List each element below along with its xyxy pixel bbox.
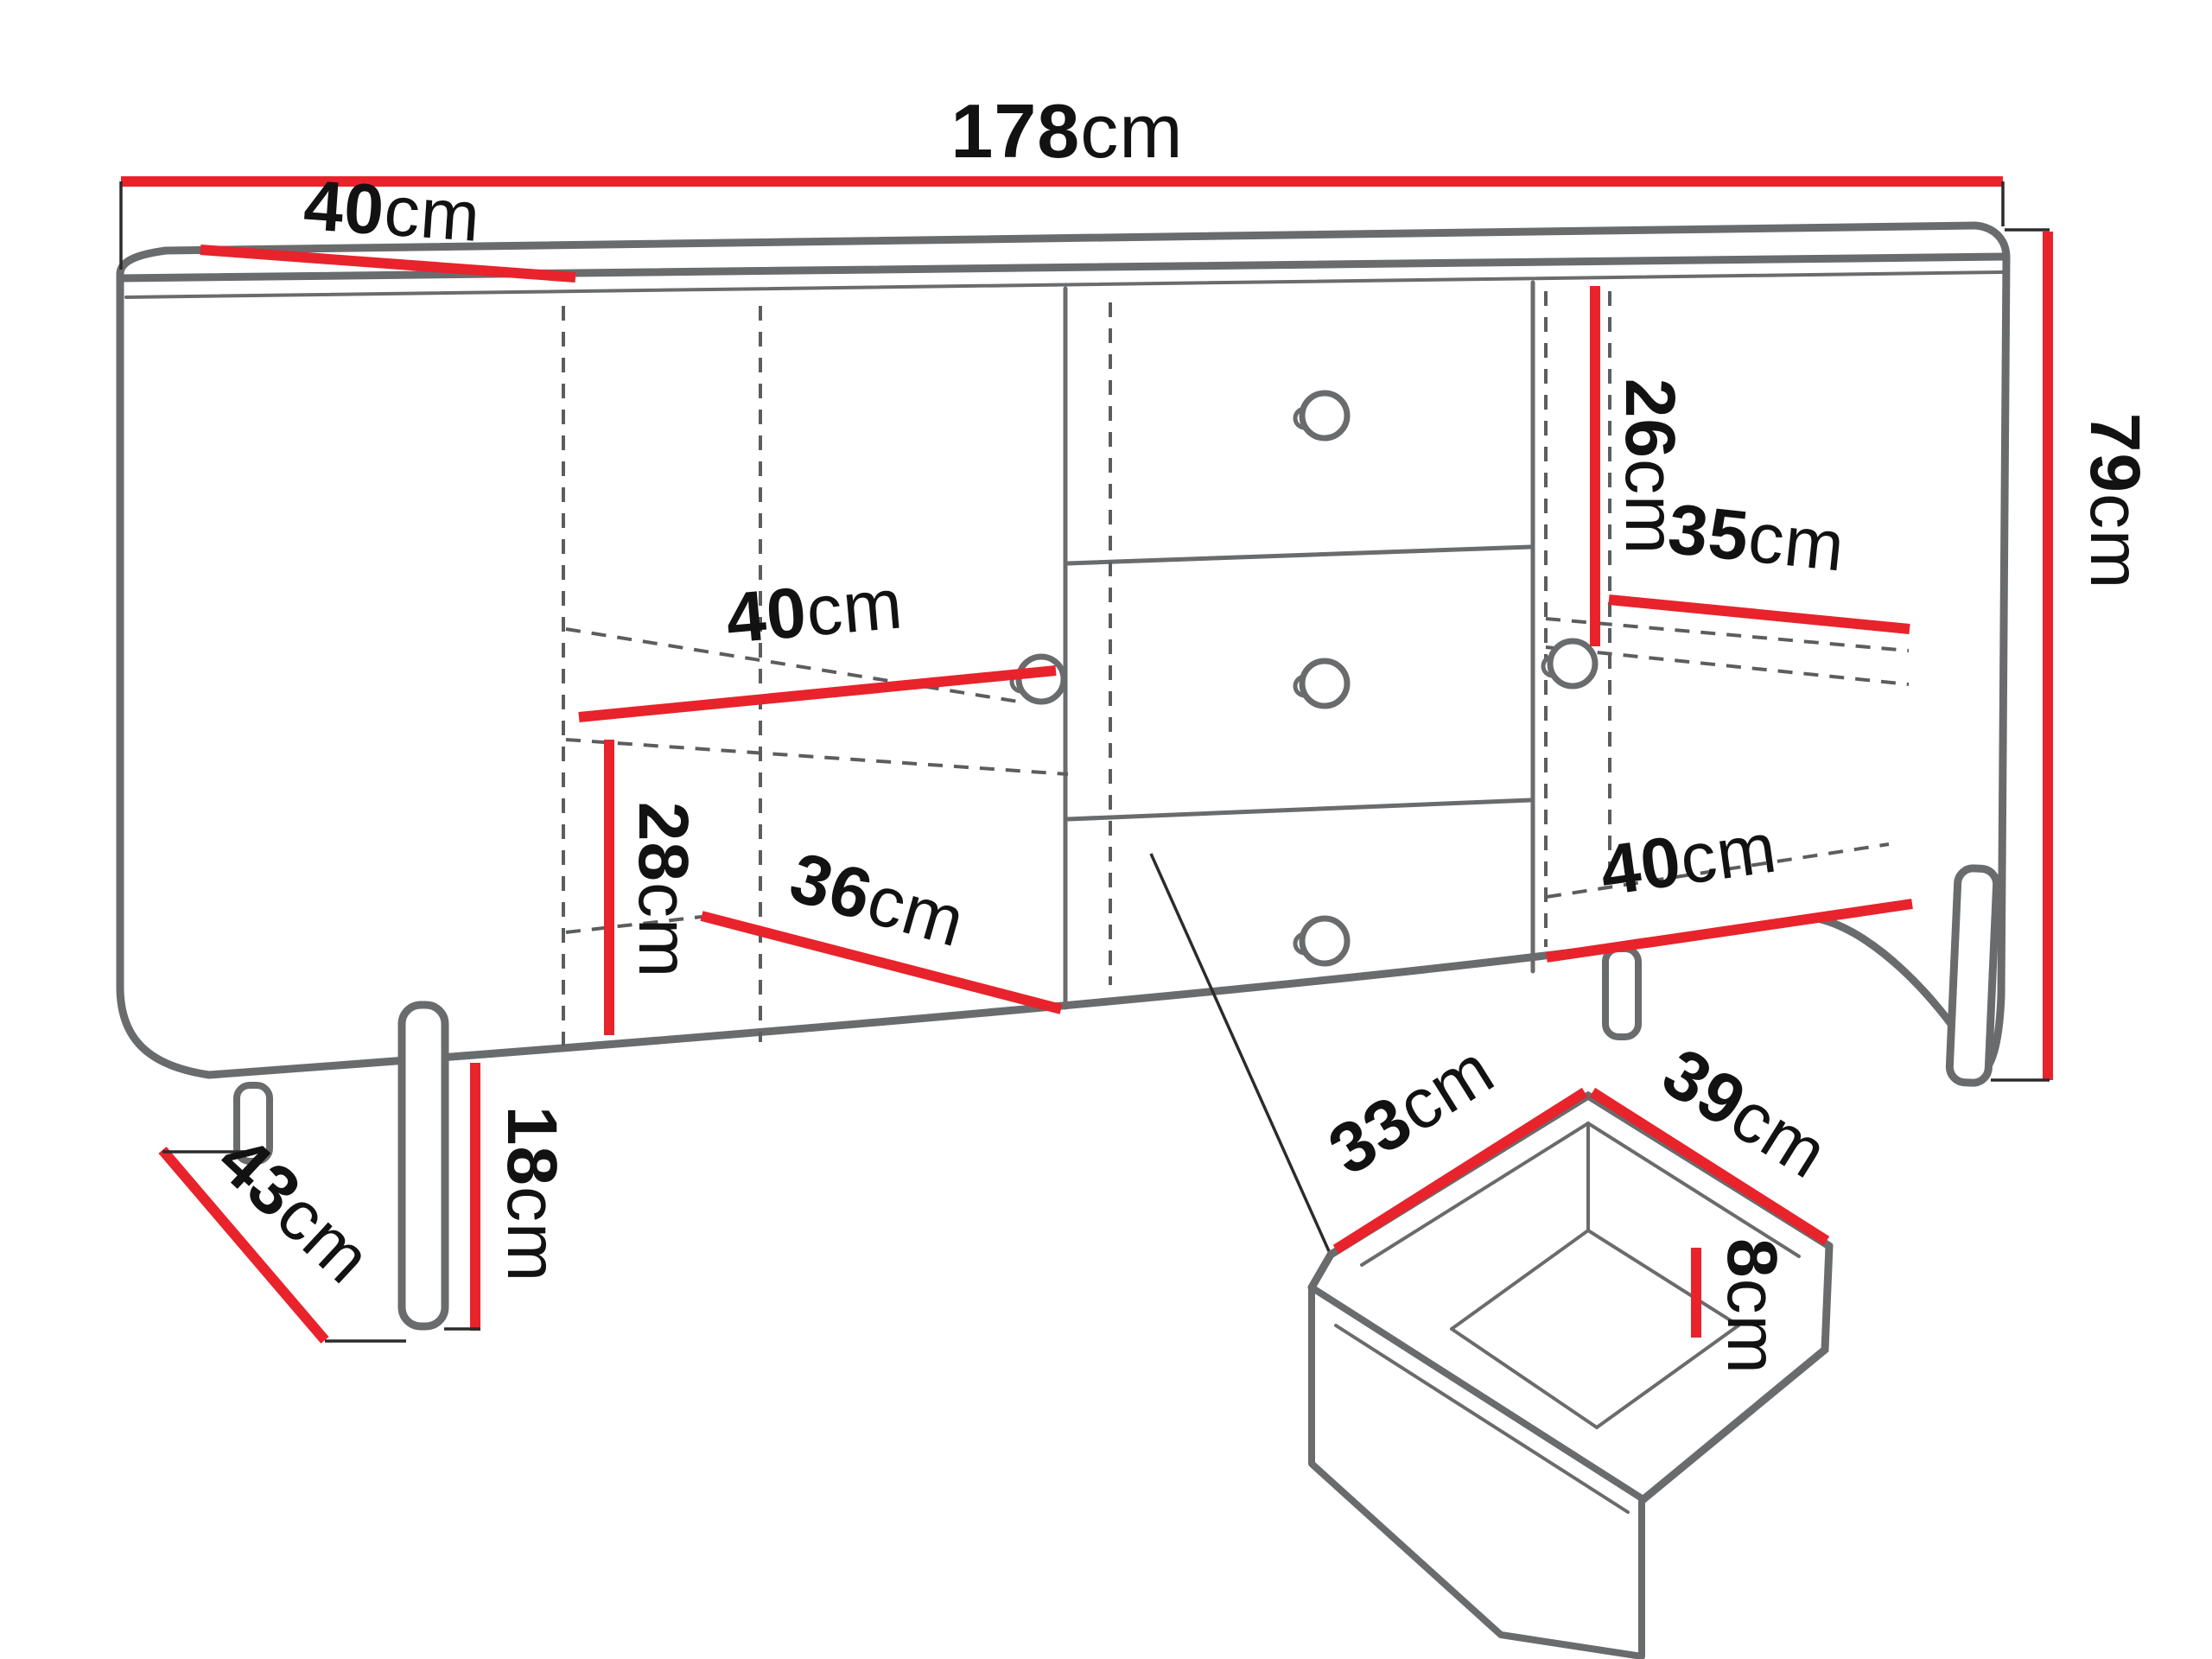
dim-right-shelf-width-value: 35: [1664, 490, 1752, 576]
dim-left-compartment-height-value: 28: [624, 802, 702, 882]
dim-base-depth: 43cm: [162, 1121, 406, 1341]
dim-right-shelf-width-label: 35cm: [1664, 490, 1848, 587]
drawer-2-knob: [1295, 661, 1347, 706]
dim-total-width-value: 178: [950, 88, 1080, 174]
drawer-3-knob: [1295, 918, 1347, 963]
dim-right-bottom-width-value: 40: [1596, 822, 1687, 911]
dim-leg-height: 18cm: [444, 1063, 571, 1331]
back-right-leg: [1605, 949, 1638, 1037]
dim-left-compartment-height-label: 28cm: [624, 802, 702, 979]
dim-total-width-label: 178cm: [950, 88, 1183, 174]
drawer-divider-2: [1068, 800, 1530, 819]
drawer-divider-1: [1068, 547, 1530, 563]
diagram-canvas: 178cm 40cm 79cm 26cm: [0, 0, 2212, 1659]
dim-total-height-label: 79cm: [2075, 413, 2154, 590]
dim-leg-height-unit: cm: [493, 1186, 571, 1282]
dim-left-compartment-height-unit: cm: [624, 882, 702, 978]
dim-total-height: 79cm: [1991, 230, 2154, 1080]
dim-total-height-unit: cm: [2075, 493, 2154, 589]
dim-left-shelf-width-unit: cm: [804, 564, 906, 651]
dim-left-shelf-width-line: [579, 671, 1056, 717]
dim-leg-height-label: 18cm: [493, 1106, 571, 1283]
dim-left-shelf-width-value: 40: [723, 573, 810, 658]
dim-top-depth-value: 40: [302, 166, 387, 250]
dim-right-shelf-width-unit: cm: [1745, 498, 1848, 586]
dim-left-compartment-depth: 36cm: [702, 838, 1061, 1009]
dim-total-width-unit: cm: [1080, 88, 1183, 174]
dim-drawer-depth: 33cm: [1316, 1030, 1585, 1249]
dim-leg-height-value: 18: [493, 1106, 571, 1186]
drawer-1-knob: [1295, 393, 1347, 438]
dim-right-shelf-width-line: [1609, 600, 1910, 629]
dim-drawer-inner-height-value: 8: [1713, 1238, 1791, 1279]
front-right-leg: [1949, 868, 1998, 1084]
dim-left-shelf-width-label: 40cm: [723, 564, 906, 658]
drawer-detail-leader-line: [1151, 854, 1329, 1251]
left-side-edge: [120, 251, 209, 1075]
technical-drawing-page: 178cm 40cm 79cm 26cm: [0, 0, 2212, 1659]
dim-right-bottom-width-unit: cm: [1675, 808, 1782, 899]
dim-right-bottom-width-label: 40cm: [1596, 808, 1782, 911]
dim-drawer-inner-height-label: 8cm: [1713, 1238, 1791, 1375]
sideboard-body: [120, 226, 2006, 1075]
interior-hidden-lines: [563, 291, 1909, 1054]
left-shelf-front-edge: [566, 740, 1068, 774]
dim-right-top-gap: 26cm: [1595, 286, 1689, 646]
dim-left-compartment-height: 28cm: [609, 740, 702, 1035]
dim-top-depth-unit: cm: [382, 172, 483, 257]
knobs: [1012, 393, 1595, 963]
dim-drawer-width-label: 39cm: [1649, 1033, 1841, 1194]
dim-left-compartment-depth-unit: cm: [859, 860, 973, 962]
dim-top-depth-label: 40cm: [302, 166, 483, 257]
drawer-left-wall-edge: [1312, 1255, 1331, 1287]
dim-drawer-width: 39cm: [1592, 1033, 1840, 1241]
right-shelf-front-edge: [1546, 647, 1909, 684]
dim-right-top-gap-value: 26: [1611, 378, 1689, 459]
dim-total-height-value: 79: [2075, 413, 2154, 493]
front-left-leg: [402, 1005, 445, 1326]
dim-base-depth-label: 43cm: [203, 1121, 386, 1299]
dim-drawer-inner-height-unit: cm: [1713, 1279, 1791, 1375]
